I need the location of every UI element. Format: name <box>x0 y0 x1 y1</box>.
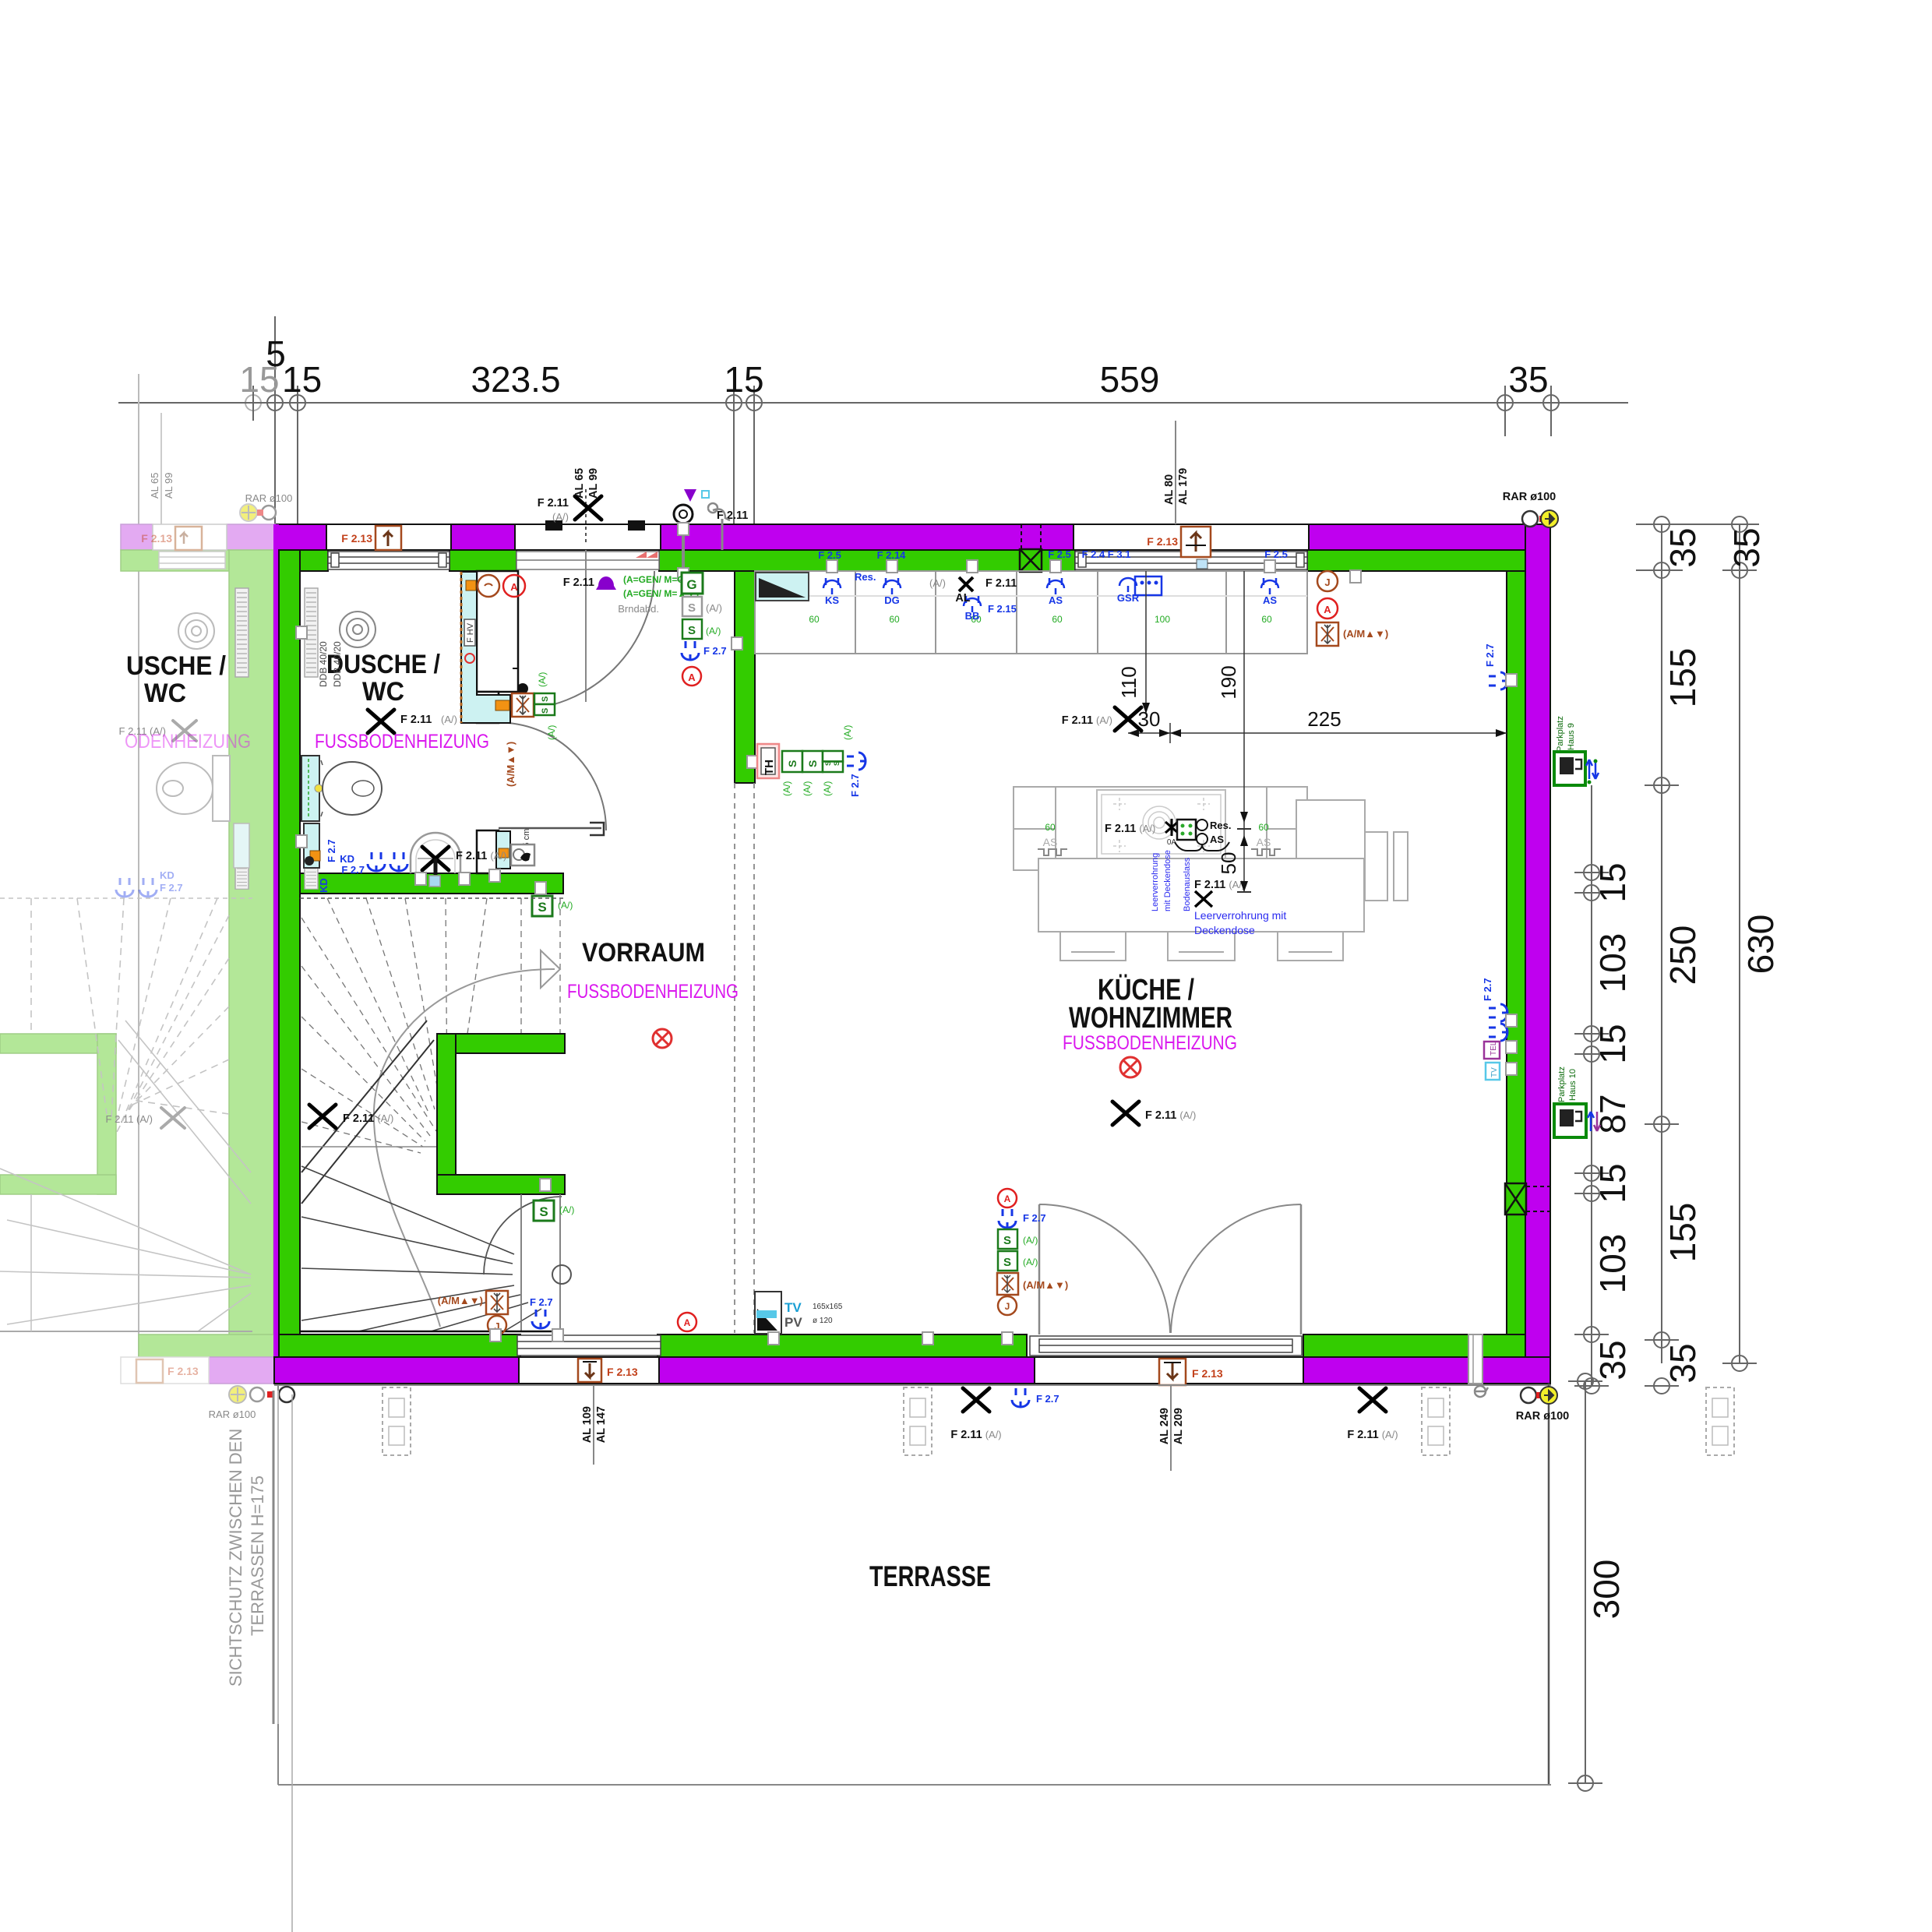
svg-text:J: J <box>1005 1301 1010 1312</box>
svg-text:60: 60 <box>889 614 900 625</box>
svg-text:35: 35 <box>1508 359 1548 400</box>
svg-text:TH: TH <box>763 760 776 775</box>
svg-text:F 2.11: F 2.11 <box>985 577 1017 590</box>
svg-text:15: 15 <box>724 359 763 400</box>
svg-text:60: 60 <box>1045 822 1056 833</box>
svg-text:GSR: GSR <box>1117 592 1140 604</box>
svg-text:F 2.13: F 2.13 <box>1147 535 1178 548</box>
svg-text:559: 559 <box>1100 359 1160 400</box>
svg-text:155: 155 <box>1662 1203 1703 1263</box>
svg-text:35: 35 <box>1662 527 1703 567</box>
svg-text:F 2.13: F 2.13 <box>341 532 372 545</box>
svg-text:KD: KD <box>318 878 330 893</box>
svg-text:S: S <box>688 601 696 615</box>
svg-text:KD: KD <box>160 869 175 881</box>
svg-text:F 2.11 (A/): F 2.11 (A/) <box>950 1429 1001 1441</box>
svg-text:F 2.11: F 2.11 <box>538 497 569 509</box>
svg-text:Res.: Res. <box>1210 820 1231 831</box>
svg-text:F 2.7: F 2.7 <box>849 774 861 797</box>
svg-text:15: 15 <box>1592 862 1633 902</box>
svg-text:60: 60 <box>809 614 820 625</box>
svg-text:F 2.7: F 2.7 <box>1036 1393 1059 1405</box>
svg-text:F 2.11 (A/): F 2.11 (A/) <box>1062 714 1112 727</box>
svg-text:103: 103 <box>1592 1234 1633 1294</box>
svg-text:(A/M▲▼): (A/M▲▼) <box>505 742 516 787</box>
svg-text:F 2.11 (A/): F 2.11 (A/) <box>106 1113 153 1125</box>
svg-text:J: J <box>1324 576 1330 588</box>
svg-text:S: S <box>541 708 550 714</box>
svg-text:S: S <box>1003 1256 1011 1269</box>
svg-text:KS: KS <box>825 594 839 606</box>
svg-text:TV: TV <box>784 1300 802 1315</box>
svg-text:S: S <box>806 760 819 767</box>
svg-text:FUSSBODENHEIZUNG: FUSSBODENHEIZUNG <box>315 731 489 753</box>
svg-text:F 2.7: F 2.7 <box>341 864 365 876</box>
svg-text:F 2.13: F 2.13 <box>1192 1367 1223 1380</box>
svg-text:50: 50 <box>1217 852 1240 875</box>
svg-text:AL: AL <box>955 592 970 605</box>
svg-text:F 2.11 (A/): F 2.11 (A/) <box>343 1112 393 1125</box>
svg-text:USCHE /: USCHE / <box>126 651 227 681</box>
svg-text:250: 250 <box>1662 925 1703 985</box>
svg-text:SICHTSCHUTZ ZWISCHEN DEN: SICHTSCHUTZ ZWISCHEN DEN <box>226 1429 245 1687</box>
svg-text:S: S <box>824 761 832 766</box>
svg-text:30: 30 <box>1138 707 1161 731</box>
svg-text:AS: AS <box>1257 836 1271 848</box>
svg-text:F 2.5: F 2.5 <box>818 549 841 561</box>
svg-text:S: S <box>538 900 546 915</box>
svg-text:TERRASSE: TERRASSE <box>869 1560 991 1592</box>
svg-text:F 2.11: F 2.11 <box>400 714 432 726</box>
svg-text:AS: AS <box>1043 836 1058 848</box>
svg-text:S: S <box>786 760 799 767</box>
svg-text:F 2.7: F 2.7 <box>1482 978 1493 1001</box>
svg-text:AL 99: AL 99 <box>587 468 600 499</box>
svg-text:RAR ø100: RAR ø100 <box>1516 1410 1570 1423</box>
svg-text:F 2.11: F 2.11 <box>563 576 594 589</box>
svg-text:AS: AS <box>1049 594 1063 606</box>
svg-text:AL 147: AL 147 <box>595 1406 608 1443</box>
svg-text:(A/): (A/) <box>802 781 813 796</box>
svg-text:225: 225 <box>1307 707 1341 731</box>
svg-text:(A/): (A/) <box>537 672 548 687</box>
svg-text:(A/): (A/) <box>929 577 946 589</box>
svg-text:F 2.11 (A/): F 2.11 (A/) <box>456 850 506 862</box>
svg-text:AL 80: AL 80 <box>1163 474 1176 505</box>
svg-text:F 2.4 F 3.1: F 2.4 F 3.1 <box>1082 548 1131 560</box>
svg-text:AL 65: AL 65 <box>573 468 586 499</box>
svg-text:A: A <box>684 1317 691 1328</box>
svg-text:630: 630 <box>1740 915 1781 975</box>
svg-text:AL 249: AL 249 <box>1158 1408 1171 1444</box>
svg-text:60: 60 <box>1258 822 1269 833</box>
svg-text:300: 300 <box>1586 1560 1627 1620</box>
svg-text:Haus 10: Haus 10 <box>1568 1069 1578 1101</box>
svg-text:155: 155 <box>1662 648 1703 708</box>
svg-text:A: A <box>688 672 696 683</box>
svg-text:WC: WC <box>144 679 186 708</box>
svg-text:F 2.7: F 2.7 <box>1023 1212 1046 1224</box>
svg-text:323.5: 323.5 <box>471 359 560 400</box>
svg-text:VORRAUM: VORRAUM <box>582 938 705 968</box>
svg-text:F 2.13: F 2.13 <box>141 532 172 545</box>
svg-text:FUSSBODENHEIZUNG: FUSSBODENHEIZUNG <box>567 981 739 1003</box>
svg-text:S: S <box>1003 1234 1011 1247</box>
svg-text:15: 15 <box>1592 1024 1633 1063</box>
svg-text:(A/): (A/) <box>781 781 792 796</box>
svg-text:A: A <box>1324 604 1331 615</box>
svg-text:F 2.14: F 2.14 <box>877 549 907 561</box>
svg-text:35: 35 <box>1592 1340 1633 1380</box>
svg-text:F 2.7: F 2.7 <box>160 882 183 894</box>
svg-text:Leerverrohrung mit: Leerverrohrung mit <box>1194 909 1286 922</box>
svg-text:AL 209: AL 209 <box>1172 1408 1185 1444</box>
svg-text:Brndabd.: Brndabd. <box>618 603 659 615</box>
svg-text:35: 35 <box>1726 527 1767 567</box>
svg-text:S: S <box>539 1204 548 1219</box>
svg-text:(A/): (A/) <box>552 511 569 523</box>
svg-text:KD: KD <box>340 853 354 865</box>
svg-text:(A/): (A/) <box>842 725 853 740</box>
svg-text:F 2.11 (A/): F 2.11 (A/) <box>1145 1109 1196 1122</box>
svg-text:(A/): (A/) <box>546 725 557 740</box>
svg-text:TV: TV <box>1490 1067 1499 1077</box>
svg-text:S: S <box>541 696 550 702</box>
svg-text:15: 15 <box>282 359 322 400</box>
svg-text:S: S <box>688 624 696 637</box>
svg-text:Parkplatz: Parkplatz <box>1557 1066 1567 1102</box>
svg-text:ODENHEIZUNG: ODENHEIZUNG <box>125 731 251 753</box>
svg-text:F 2.13: F 2.13 <box>167 1365 199 1377</box>
svg-text:AS: AS <box>1210 834 1224 845</box>
svg-text:AL 179: AL 179 <box>1177 468 1190 505</box>
svg-text:AL 99: AL 99 <box>163 473 175 499</box>
svg-text:RAR ø100: RAR ø100 <box>209 1408 256 1420</box>
svg-text:F 2.7: F 2.7 <box>1484 643 1496 667</box>
svg-text:RAR ø100: RAR ø100 <box>1503 491 1557 503</box>
svg-text:(A/M▲▼): (A/M▲▼) <box>1023 1279 1068 1291</box>
svg-text:S: S <box>833 761 841 766</box>
svg-text:PV: PV <box>784 1315 802 1330</box>
svg-text:(A/M▲▼): (A/M▲▼) <box>1343 628 1388 640</box>
svg-text:100: 100 <box>1155 614 1170 625</box>
svg-text:(A/): (A/) <box>822 781 833 796</box>
svg-text:WOHNZIMMER: WOHNZIMMER <box>1069 1002 1232 1035</box>
svg-text:mit Deckendose: mit Deckendose <box>1163 850 1172 911</box>
svg-text:F 2.5: F 2.5 <box>1048 548 1071 560</box>
svg-text:F 2.15: F 2.15 <box>988 603 1017 615</box>
svg-text:DG: DG <box>884 594 900 606</box>
svg-text:Leerverrohrung: Leerverrohrung <box>1151 853 1160 911</box>
svg-text:Bodenauslass: Bodenauslass <box>1183 857 1192 911</box>
svg-text:190: 190 <box>1217 665 1240 699</box>
svg-text:60: 60 <box>1261 614 1272 625</box>
svg-text:AL 109: AL 109 <box>581 1406 594 1443</box>
svg-text:F 2.7: F 2.7 <box>530 1296 553 1308</box>
svg-text:35: 35 <box>1662 1343 1703 1383</box>
svg-text:AS: AS <box>1263 594 1277 606</box>
svg-text:15: 15 <box>1592 1163 1633 1203</box>
svg-text:Deckendose: Deckendose <box>1194 924 1255 936</box>
svg-text:60: 60 <box>1052 614 1063 625</box>
svg-text:F HV: F HV <box>466 622 475 643</box>
svg-text:(A/M▲▼): (A/M▲▼) <box>438 1295 483 1306</box>
svg-text:TERRASSEN H=175: TERRASSEN H=175 <box>248 1475 267 1636</box>
svg-text:110: 110 <box>1117 666 1141 698</box>
svg-text:F 2.7: F 2.7 <box>326 839 337 862</box>
svg-text:(A/): (A/) <box>1023 1235 1038 1246</box>
svg-text:F 2.7: F 2.7 <box>703 645 727 657</box>
svg-text:F 2.13: F 2.13 <box>607 1366 638 1378</box>
svg-text:BB: BB <box>965 610 980 622</box>
svg-text:DDB 40/20: DDB 40/20 <box>318 641 329 687</box>
svg-text:(A/): (A/) <box>1023 1257 1038 1267</box>
svg-text:103: 103 <box>1592 933 1633 993</box>
svg-text:WC: WC <box>362 677 404 707</box>
svg-text:G: G <box>686 577 696 592</box>
svg-text:A: A <box>1004 1193 1011 1204</box>
svg-text:DDB 40/20: DDB 40/20 <box>332 641 343 687</box>
svg-text:RAR ø100: RAR ø100 <box>245 492 293 504</box>
svg-text:Haus 9: Haus 9 <box>1567 723 1576 750</box>
svg-text:Parkplatz: Parkplatz <box>1556 716 1565 752</box>
svg-text:A: A <box>510 581 518 593</box>
svg-text:Res.: Res. <box>855 571 876 583</box>
svg-text:FUSSBODENHEIZUNG: FUSSBODENHEIZUNG <box>1063 1032 1237 1054</box>
svg-text:(A/): (A/) <box>706 602 722 614</box>
svg-text:ø 120: ø 120 <box>813 1317 833 1325</box>
svg-text:(A/): (A/) <box>559 1204 574 1215</box>
svg-text:165x165: 165x165 <box>813 1303 843 1311</box>
svg-text:(A/): (A/) <box>441 714 457 725</box>
svg-text:F 2.11 (A/): F 2.11 (A/) <box>1347 1429 1398 1441</box>
svg-text:DUSCHE /: DUSCHE / <box>326 650 440 679</box>
svg-text:F 2.11 (A/): F 2.11 (A/) <box>1194 879 1245 891</box>
svg-text:F 2.11 (A/): F 2.11 (A/) <box>1105 823 1155 835</box>
svg-text:AL 65: AL 65 <box>149 473 160 499</box>
svg-text:F 2.5: F 2.5 <box>1264 548 1288 560</box>
svg-text:(A/): (A/) <box>706 626 721 636</box>
svg-text:TEL: TEL <box>1490 1041 1498 1056</box>
